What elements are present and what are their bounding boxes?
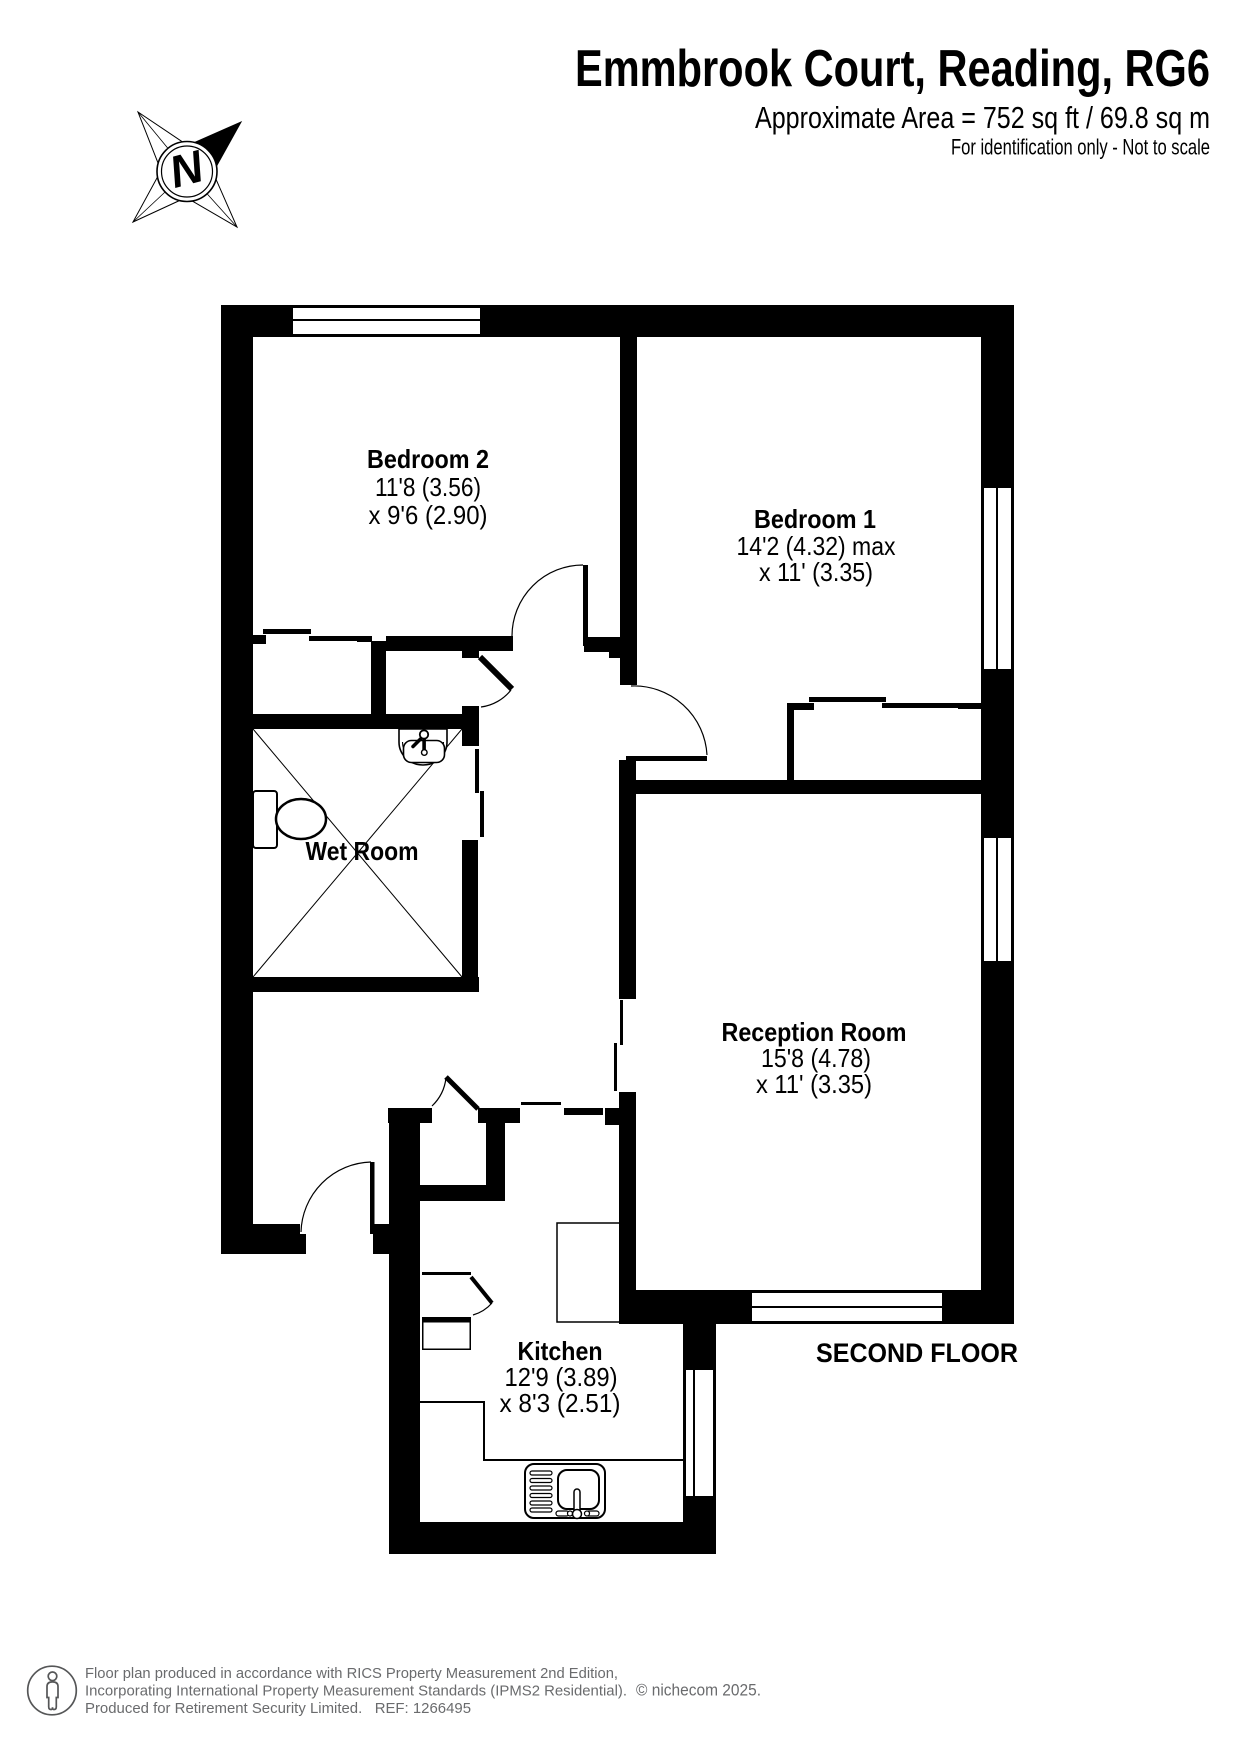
svg-text:© nichecom 2025.: © nichecom 2025.	[636, 1682, 761, 1700]
svg-text:Produced for Retirement Securi: Produced for Retirement Security Limited…	[85, 1700, 471, 1717]
svg-text:Bedroom 1: Bedroom 1	[754, 504, 876, 534]
svg-text:x 11' (3.35): x 11' (3.35)	[759, 557, 873, 587]
svg-text:Incorporating International Pr: Incorporating International Property Mea…	[85, 1683, 627, 1700]
svg-text:x 8'3 (2.51): x 8'3 (2.51)	[500, 1388, 621, 1418]
svg-text:For identification only - Not: For identification only - Not to scale	[951, 135, 1210, 160]
svg-text:SECOND FLOOR: SECOND FLOOR	[816, 1338, 1018, 1368]
svg-text:Approximate Area = 752 sq ft /: Approximate Area = 752 sq ft / 69.8 sq m	[755, 100, 1210, 135]
svg-text:x 9'6 (2.90): x 9'6 (2.90)	[369, 500, 488, 530]
svg-text:Emmbrook Court, Reading, RG6: Emmbrook Court, Reading, RG6	[575, 40, 1210, 98]
svg-text:Floor plan produced in accorda: Floor plan produced in accordance with R…	[85, 1665, 618, 1682]
svg-text:Bedroom 2: Bedroom 2	[367, 444, 489, 474]
svg-text:11'8 (3.56): 11'8 (3.56)	[375, 472, 481, 502]
svg-text:x 11' (3.35): x 11' (3.35)	[756, 1069, 872, 1099]
svg-text:Wet Room: Wet Room	[306, 836, 419, 866]
